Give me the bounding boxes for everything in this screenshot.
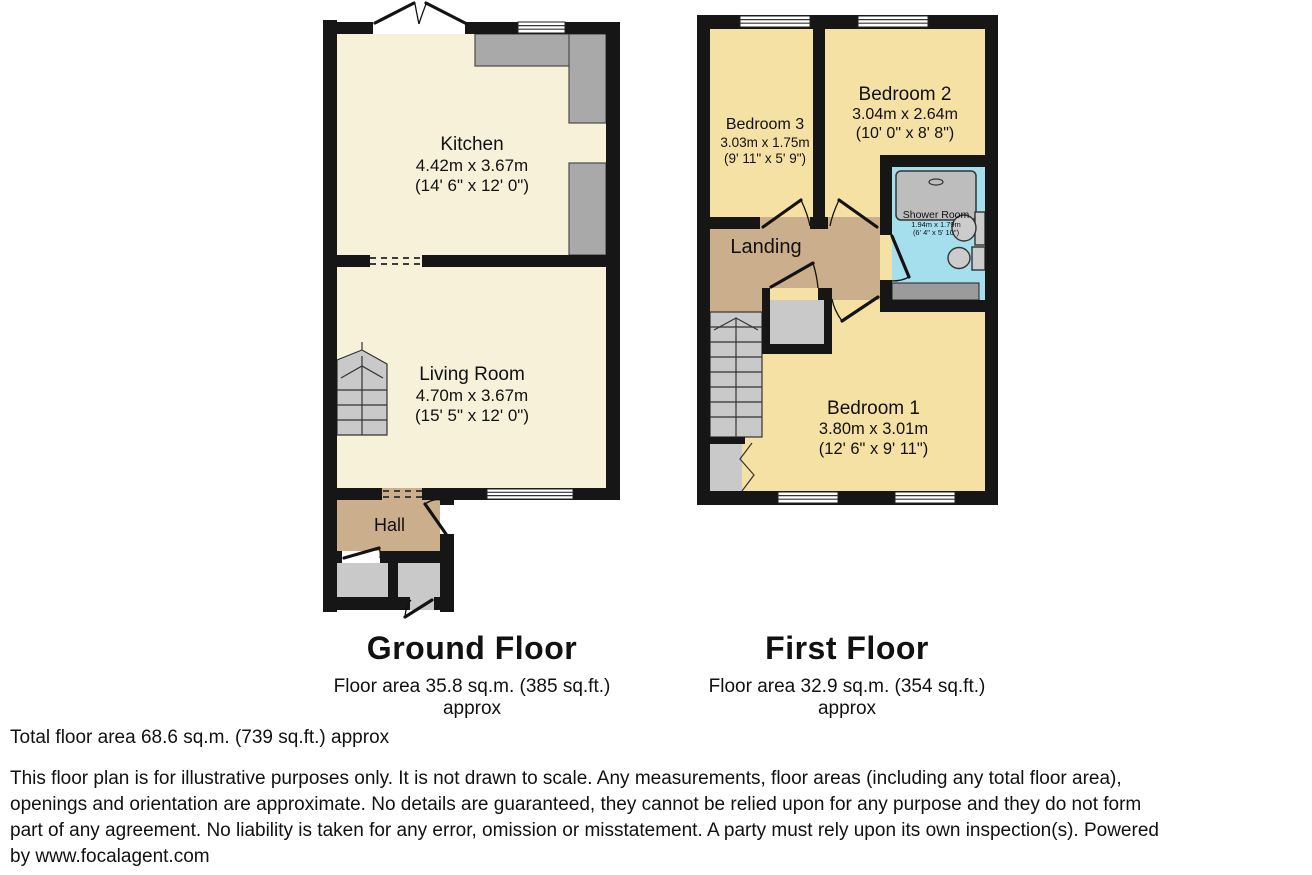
first-floor-title: First Floor <box>696 630 998 667</box>
ground-floor-title: Ground Floor <box>322 630 622 667</box>
disclaimer-line-3: part of any agreement. No liability is t… <box>10 818 1159 844</box>
bedroom-2-metric: 3.04m x 2.64m <box>825 106 985 125</box>
toilet-icon <box>948 247 985 270</box>
ground-floor-plan: Kitchen 4.42m x 3.67m (14' 6" x 12' 0") … <box>322 0 622 630</box>
kitchen-imperial: (14' 6" x 12' 0") <box>377 176 567 196</box>
landing-name: Landing <box>711 236 821 260</box>
bedroom-3-name: Bedroom 3 <box>708 116 822 135</box>
room-label-bedroom-1: Bedroom 1 3.80m x 3.01m (12' 6" x 9' 11"… <box>791 398 956 459</box>
room-label-hall: Hall <box>347 515 432 536</box>
disclaimer-line-1: This floor plan is for illustrative purp… <box>10 766 1159 792</box>
first-floor-plan: Bedroom 3 3.03m x 1.75m (9' 11" x 5' 9")… <box>696 0 998 510</box>
living-room-imperial: (15' 5" x 12' 0") <box>377 406 567 426</box>
room-label-landing: Landing <box>711 236 821 260</box>
disclaimer-line-4: by www.focalagent.com <box>10 844 1159 870</box>
ground-floor-area: Floor area 35.8 sq.m. (385 sq.ft.) <box>322 676 622 698</box>
total-floor-area: Total floor area 68.6 sq.m. (739 sq.ft.)… <box>10 727 389 749</box>
bedroom-1-name: Bedroom 1 <box>791 398 956 420</box>
first-floor-approx: approx <box>696 698 998 720</box>
living-room-name: Living Room <box>377 364 567 386</box>
bedroom-2-imperial: (10' 0" x 8' 8") <box>825 125 985 144</box>
bathroom-cabinet-icon <box>892 283 979 300</box>
bedroom-3-metric: 3.03m x 1.75m <box>708 135 822 151</box>
ground-floor-caption: Ground Floor Floor area 35.8 sq.m. (385 … <box>322 630 622 720</box>
floorplan-page: Kitchen 4.42m x 3.67m (14' 6" x 12' 0") … <box>0 0 1312 875</box>
shower-room-imperial: (6' 4" x 5' 10") <box>893 229 979 237</box>
room-label-bedroom-2: Bedroom 2 3.04m x 2.64m (10' 0" x 8' 8") <box>825 84 985 144</box>
room-label-shower-room: Shower Room 1.94m x 1.79m (6' 4" x 5' 10… <box>893 210 979 237</box>
disclaimer: This floor plan is for illustrative purp… <box>10 766 1159 870</box>
bedroom-3-imperial: (9' 11" x 5' 9") <box>708 151 822 167</box>
room-label-kitchen: Kitchen 4.42m x 3.67m (14' 6" x 12' 0") <box>377 134 567 197</box>
bedroom-2-name: Bedroom 2 <box>825 84 985 106</box>
living-room-metric: 4.70m x 3.67m <box>377 386 567 406</box>
kitchen-metric: 4.42m x 3.67m <box>377 156 567 176</box>
first-floor-area: Floor area 32.9 sq.m. (354 sq.ft.) <box>696 676 998 698</box>
bedroom-1-imperial: (12' 6" x 9' 11") <box>791 440 956 459</box>
room-label-bedroom-3: Bedroom 3 3.03m x 1.75m (9' 11" x 5' 9") <box>708 116 822 167</box>
room-label-living-room: Living Room 4.70m x 3.67m (15' 5" x 12' … <box>377 364 567 427</box>
first-floor-caption: First Floor Floor area 32.9 sq.m. (354 s… <box>696 630 998 720</box>
bedroom-1-metric: 3.80m x 3.01m <box>791 420 956 439</box>
ground-floor-approx: approx <box>322 698 622 720</box>
disclaimer-line-2: openings and orientation are approximate… <box>10 792 1159 818</box>
hall-name: Hall <box>347 515 432 536</box>
kitchen-name: Kitchen <box>377 134 567 156</box>
